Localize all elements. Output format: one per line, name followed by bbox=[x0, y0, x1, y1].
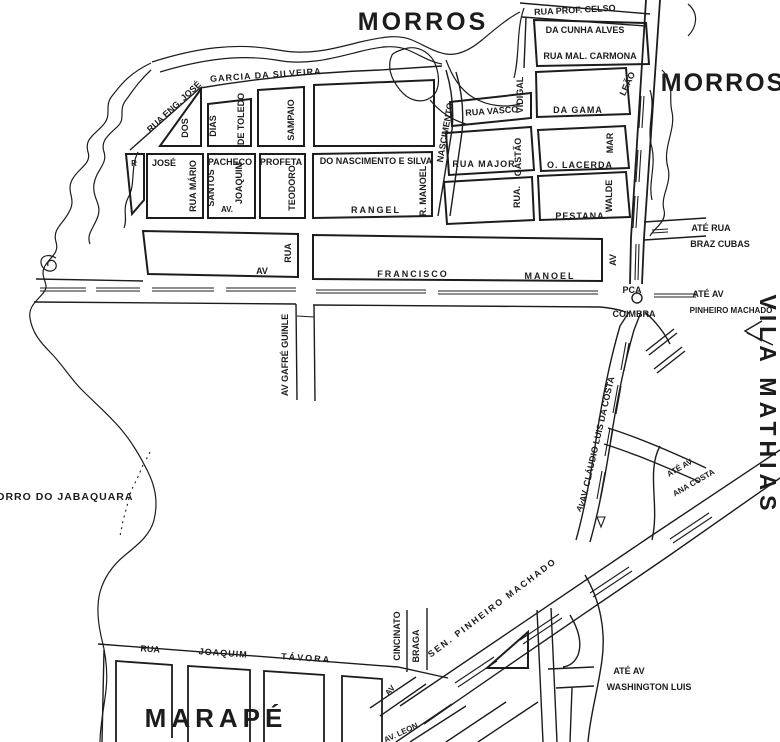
coast-inner bbox=[89, 70, 151, 244]
scanned-street-map: MORROSMORROSVILA MATHIASMARAPÉMORRO DO J… bbox=[0, 0, 780, 742]
pm-median-1 bbox=[455, 657, 497, 687]
do-nascimento-e-silva-label: DO NASCIMENTO E SILVA bbox=[320, 156, 433, 166]
hill-blob bbox=[390, 48, 439, 101]
av-label: AV. bbox=[221, 205, 233, 214]
joaquim-label: JOAQUIM bbox=[198, 646, 248, 659]
rua-label: RUA bbox=[140, 643, 161, 654]
rua-major-label: RUA MAJOR bbox=[452, 159, 515, 169]
ate-av-2-label: ATÉ AV bbox=[665, 457, 694, 479]
rangel-label: RANGEL bbox=[351, 205, 401, 215]
gafre-tick bbox=[297, 316, 314, 317]
coastline bbox=[30, 63, 156, 742]
rua-ma-rio-label: RUA MÁRIO bbox=[188, 160, 198, 212]
top-road-right-edge bbox=[642, 0, 660, 284]
morros-top-label: MORROS bbox=[358, 8, 489, 36]
pca-median bbox=[635, 244, 639, 280]
block-top-wide bbox=[314, 80, 434, 146]
blocks-top-right bbox=[444, 18, 649, 224]
avenue-lower-edge-left bbox=[34, 302, 296, 304]
rua-vasco-label: RUA VASCO bbox=[465, 104, 519, 118]
vidigal-street-upper bbox=[524, 18, 526, 68]
morros-right-label: MORROS bbox=[661, 69, 780, 97]
ate-av-3-label: ATÉ AV bbox=[613, 666, 644, 676]
map-canvas: MORROSMORROSVILA MATHIASMARAPÉMORRO DO J… bbox=[0, 0, 780, 742]
praca-abbrev-label: PCA bbox=[622, 285, 642, 295]
de-toledo-label: DE TOLEDO bbox=[236, 93, 246, 145]
leon-diagonal-2 bbox=[446, 702, 506, 742]
marape-label: MARAPÉ bbox=[145, 703, 288, 733]
pestana-label: PESTANA bbox=[555, 211, 604, 221]
rua-label: RUA bbox=[283, 243, 293, 263]
median-dash-6 bbox=[438, 291, 598, 294]
block-sampaio bbox=[258, 87, 304, 146]
avenue-pinheiro-machado bbox=[370, 446, 780, 742]
cross-street-left-edge bbox=[537, 610, 543, 742]
pm-median-2 bbox=[520, 614, 562, 644]
pm-median-3 bbox=[590, 567, 632, 597]
morro-do-jabaquara-label: MORRO DO JABAQUARA bbox=[0, 491, 133, 503]
junction-triangle-marker bbox=[597, 517, 605, 527]
rua-mal-carmona-label: RUA MAL. CARMONA bbox=[543, 51, 637, 61]
hill-celso-edge bbox=[514, 8, 524, 78]
da-gama-label: DA GAMA bbox=[553, 105, 603, 115]
dias-label: DIAS bbox=[208, 115, 218, 137]
walde-label: WALDE bbox=[604, 180, 614, 213]
santos-label: SANTOS bbox=[206, 169, 216, 206]
praca-coimbra-label: COIMBRA bbox=[613, 309, 656, 319]
avenue-lower-edge-right bbox=[313, 305, 626, 312]
lea-o-label: LEÃO bbox=[617, 70, 637, 97]
jose-label: JOSÉ bbox=[152, 158, 176, 168]
strip-av-rua bbox=[143, 231, 298, 277]
median-dash-1 bbox=[40, 288, 86, 291]
sampaio-label: SAMPAIO bbox=[286, 99, 296, 140]
o-lacerda-label: O. LACERDA bbox=[547, 160, 613, 170]
pinheiro-machado-label: PINHEIRO MACHADO bbox=[690, 306, 773, 315]
avenue-francisco-manoel bbox=[34, 231, 696, 312]
washington-luis-label: WASHINGTON LUIS bbox=[607, 682, 692, 692]
pm-lower-edge bbox=[424, 478, 780, 724]
dos-label: DOS bbox=[180, 118, 190, 138]
washington-lower-vertical bbox=[570, 688, 572, 742]
pm-triangle-block bbox=[487, 632, 528, 668]
manoel-label: MANOEL bbox=[525, 271, 576, 281]
av-label: AV bbox=[256, 266, 268, 276]
pacheco-label: PACHECO bbox=[208, 157, 252, 167]
median-dash-3 bbox=[152, 288, 214, 291]
pm-median-4 bbox=[670, 513, 712, 543]
joaquim-label: JOAQUIM bbox=[234, 162, 244, 204]
vila-mathias-label: VILA MATHIAS bbox=[755, 295, 780, 516]
median-dash-7 bbox=[654, 294, 696, 297]
cincinato-label: CINCINATO bbox=[392, 611, 402, 660]
r-manoel-label: R. MANOEL bbox=[418, 165, 428, 216]
leon-diagonal-3 bbox=[478, 702, 538, 742]
right-curve-street bbox=[585, 575, 603, 742]
av-leon-start-label: AV bbox=[383, 683, 397, 697]
rua-label: RUA. bbox=[512, 186, 522, 208]
gafre-right-edge bbox=[314, 305, 315, 401]
gafre-left-edge bbox=[296, 304, 297, 400]
washington-stub-top bbox=[548, 667, 594, 669]
median-dash-2 bbox=[96, 288, 140, 291]
da-cunha-alves-label: DA CUNHA ALVES bbox=[546, 25, 625, 35]
ramp-curve bbox=[652, 446, 660, 540]
coast-main bbox=[30, 63, 156, 742]
teodoro-label: TEODORO bbox=[287, 165, 297, 211]
claudio-median-1 bbox=[621, 342, 629, 371]
ta-vora-label: TÁVORA bbox=[281, 651, 332, 664]
braz-cubas-label: BRAZ CUBAS bbox=[690, 239, 750, 249]
street-gafre-guinle bbox=[296, 304, 315, 401]
av-vertical-label: AV bbox=[608, 254, 618, 266]
francisco-label: FRANCISCO bbox=[377, 269, 449, 279]
braga-label: BRAGA bbox=[411, 629, 421, 662]
mar-label: MAR bbox=[605, 132, 615, 153]
braz-cubas-stub-top bbox=[644, 218, 706, 222]
ate-av-1-label: ATÉ AV bbox=[692, 289, 723, 299]
median-dash-5 bbox=[316, 290, 426, 293]
r-label: R bbox=[131, 159, 137, 168]
cross-street-right-edge bbox=[551, 608, 557, 742]
ate-rua-label: ATÉ RUA bbox=[691, 223, 731, 233]
hatch-bar-1 bbox=[646, 329, 677, 355]
claudio-median-4 bbox=[597, 471, 605, 500]
median-dash-4 bbox=[226, 288, 296, 291]
avenue-left-upper-edge bbox=[36, 279, 143, 281]
gasta-o-label: GASTÃO bbox=[513, 138, 523, 177]
coast-loop bbox=[41, 256, 56, 272]
bottom-left-edge bbox=[102, 650, 104, 742]
bottom-block-d bbox=[342, 676, 382, 742]
vidigal-label: VIDIGAL bbox=[515, 76, 525, 113]
av-gafre-guinle-label: AV GAFRÉ GUINLE bbox=[280, 314, 290, 396]
garcia-da-silveira-label: GARCIA DA SILVEIRA bbox=[210, 66, 322, 84]
hatch-bar-2 bbox=[654, 347, 685, 373]
washington-stub-bottom bbox=[556, 686, 594, 688]
right-hill-top bbox=[688, 4, 696, 36]
